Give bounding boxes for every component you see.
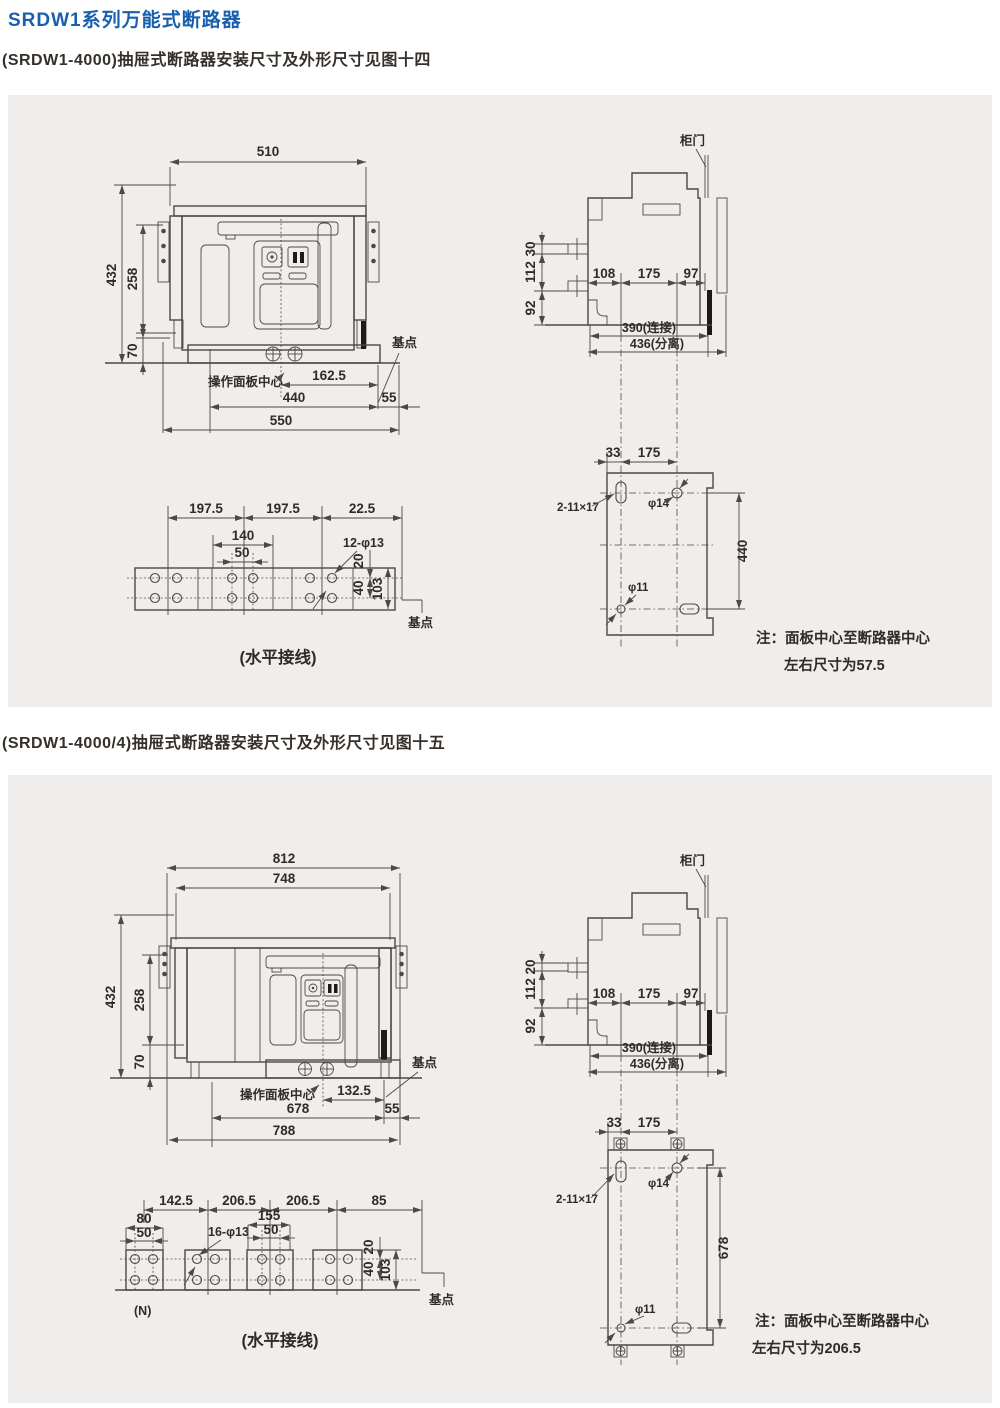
fig15-dim-155: 155 <box>258 1208 281 1223</box>
fig14-dim-112: 112 <box>523 261 538 283</box>
fig14-dim-140: 140 <box>232 528 255 543</box>
fig15-bus-base-point-label: 基点 <box>428 1292 455 1307</box>
figure15-drawing: 812 748 432 258 70 <box>8 775 992 1403</box>
fig15-bus-caption: (水平接线) <box>242 1330 319 1350</box>
fig15-dim-20: 20 <box>523 959 538 974</box>
fig15-dim-108: 108 <box>593 986 616 1001</box>
fig15-plate-dim-678: 678 <box>716 1236 731 1259</box>
fig14-busbar-view: 197.5 197.5 22.5 140 50 12-φ13 20 40 103… <box>127 501 434 667</box>
fig15-dim-206a: 206.5 <box>222 1193 256 1208</box>
fig14-cabinet-door-label: 柜门 <box>679 133 705 148</box>
fig14-note-line1: 注：面板中心至断路器中心 <box>756 629 930 647</box>
fig15-front-view: 812 748 432 258 70 <box>103 851 438 1147</box>
fig15-dim-206b: 206.5 <box>286 1193 320 1208</box>
fig15-dim-103: 103 <box>378 1258 393 1281</box>
fig15-note-line2: 左右尺寸为206.5 <box>751 1339 861 1357</box>
fig14-dim-258: 258 <box>125 267 140 290</box>
fig14-dim-390: 390(连接) <box>622 320 676 335</box>
page-title: SRDW1系列万能式断路器 <box>8 5 242 32</box>
fig15-base-point-label: 基点 <box>411 1055 438 1070</box>
fig14-dim-108: 108 <box>593 266 616 281</box>
fig14-dim-436: 436(分离) <box>630 336 684 351</box>
fig15-slot-label: 2-11×17 <box>556 1194 598 1206</box>
fig14-dim-197a: 197.5 <box>189 501 223 516</box>
fig15-note-line1: 注：面板中心至断路器中心 <box>755 1312 929 1330</box>
fig14-dim-70: 70 <box>125 343 140 358</box>
fig15-dim-70: 70 <box>132 1054 147 1069</box>
fig15-dim-97: 97 <box>683 986 698 1001</box>
fig14-dim-92: 92 <box>523 300 538 315</box>
section-heading-fig15: (SRDW1-4000/4)抽屉式断路器安装尺寸及外形尺寸见图十五 <box>2 729 445 753</box>
fig14-dim-20: 20 <box>351 553 366 568</box>
fig15-right-rail <box>396 946 407 988</box>
fig14-dim-440: 440 <box>283 390 306 405</box>
fig14-dim-175: 175 <box>638 266 661 281</box>
fig15-mounting-plate: 33 175 2-11×17 φ14 φ11 678 <box>556 1055 731 1365</box>
fig15-panel-center-label: 操作面板中心 <box>240 1087 316 1102</box>
fig14-plate-dim-440: 440 <box>735 540 750 563</box>
fig15-dim-20b: 20 <box>361 1239 376 1254</box>
fig15-control-cluster <box>301 975 343 1043</box>
fig14-dim-162-5: 162.5 <box>312 368 346 383</box>
fig14-control-cluster <box>254 241 320 329</box>
fig15-dim-40: 40 <box>361 1261 376 1276</box>
fig15-dim-142-5: 142.5 <box>159 1193 193 1208</box>
fig15-dim-50a: 50 <box>136 1225 151 1240</box>
fig15-plate-dim-175: 175 <box>638 1115 661 1130</box>
fig14-dim-432: 432 <box>104 264 119 287</box>
fig14-dim-30: 30 <box>523 241 538 256</box>
fig15-dim-258: 258 <box>132 988 147 1011</box>
fig15-dim-80: 80 <box>136 1211 151 1226</box>
fig14-front-view: 510 432 258 70 <box>104 144 420 435</box>
fig14-plate-dim-33: 33 <box>605 445 621 460</box>
fig15-hole11-label: φ11 <box>635 1304 656 1316</box>
fig15-dim-85: 85 <box>371 1193 387 1208</box>
figure14-panel: 510 432 258 70 <box>8 95 992 707</box>
fig14-mounting-plate: 33 175 2-11×17 φ14 φ11 440 <box>557 335 750 647</box>
fig14-side-view: 柜门 30 112 92 108 175 97 390(连接) 436(分离) <box>523 133 727 357</box>
fig14-panel-center-label: 操作面板中心 <box>208 374 284 389</box>
fig14-dim-22-5: 22.5 <box>349 501 376 516</box>
fig15-dim-812: 812 <box>273 851 296 866</box>
fig15-dim-432: 432 <box>103 986 118 1009</box>
fig14-plate-dim-175: 175 <box>638 445 661 460</box>
fig14-mounting-screw-icon <box>266 347 302 361</box>
fig14-dim-197b: 197.5 <box>266 501 300 516</box>
fig15-holes-label: 16-φ13 <box>208 1225 249 1239</box>
fig14-note-line2: 左右尺寸为57.5 <box>783 656 885 674</box>
fig14-dim-40: 40 <box>351 580 366 595</box>
fig14-dim-103: 103 <box>370 577 385 600</box>
fig15-dim-175: 175 <box>638 986 661 1001</box>
fig14-holes-label: 12-φ13 <box>343 536 384 550</box>
fig14-base-point-label: 基点 <box>391 335 418 350</box>
fig14-dim-510: 510 <box>257 144 280 159</box>
fig14-bus-base-point-label: 基点 <box>407 615 434 630</box>
fig15-dim-112: 112 <box>523 978 538 1000</box>
figure14-drawing: 510 432 258 70 <box>8 95 992 707</box>
fig14-dim-97: 97 <box>683 266 698 281</box>
fig15-note: 注：面板中心至断路器中心 左右尺寸为206.5 <box>751 1312 929 1357</box>
fig15-left-rail <box>159 946 170 988</box>
fig15-dim-678: 678 <box>287 1101 310 1116</box>
fig14-bus-caption: (水平接线) <box>240 647 317 667</box>
fig15-dim-436: 436(分离) <box>630 1056 684 1071</box>
fig14-right-rail <box>368 222 379 282</box>
fig14-slot-label: 2-11×17 <box>557 502 599 514</box>
fig14-note: 注：面板中心至断路器中心 左右尺寸为57.5 <box>756 629 930 674</box>
fig15-busbar-view: 142.5 206.5 206.5 85 80 50 16-φ13 155 50 <box>115 1193 455 1350</box>
fig14-dim-50: 50 <box>234 545 249 560</box>
fig15-dim-748: 748 <box>273 871 296 886</box>
fig15-plate-dim-33: 33 <box>606 1115 622 1130</box>
section-heading-fig14: (SRDW1-4000)抽屉式断路器安装尺寸及外形尺寸见图十四 <box>2 46 431 70</box>
fig15-dim-788: 788 <box>273 1123 296 1138</box>
fig14-hole11-label: φ11 <box>628 582 649 594</box>
fig15-dim-132-5: 132.5 <box>337 1083 371 1098</box>
fig15-dim-55: 55 <box>384 1101 400 1116</box>
fig15-dim-92: 92 <box>523 1018 538 1033</box>
fig15-mounting-screw-icon <box>299 1063 334 1076</box>
fig14-left-rail <box>158 222 169 282</box>
fig15-dim-50b: 50 <box>263 1222 278 1237</box>
fig15-rack-handle <box>345 965 357 1067</box>
fig15-cabinet-door-label: 柜门 <box>679 853 705 868</box>
figure15-panel: 812 748 432 258 70 <box>8 775 992 1403</box>
fig14-hole14-label: φ14 <box>648 498 670 510</box>
fig15-dim-390: 390(连接) <box>622 1040 676 1055</box>
fig14-dim-55: 55 <box>381 390 397 405</box>
fig14-dim-550: 550 <box>270 413 293 428</box>
fig15-neutral-label: (N) <box>134 1304 151 1318</box>
fig15-side-view: 柜门 20 112 92 108 175 97 390(连接) 436(分离) <box>523 853 727 1077</box>
